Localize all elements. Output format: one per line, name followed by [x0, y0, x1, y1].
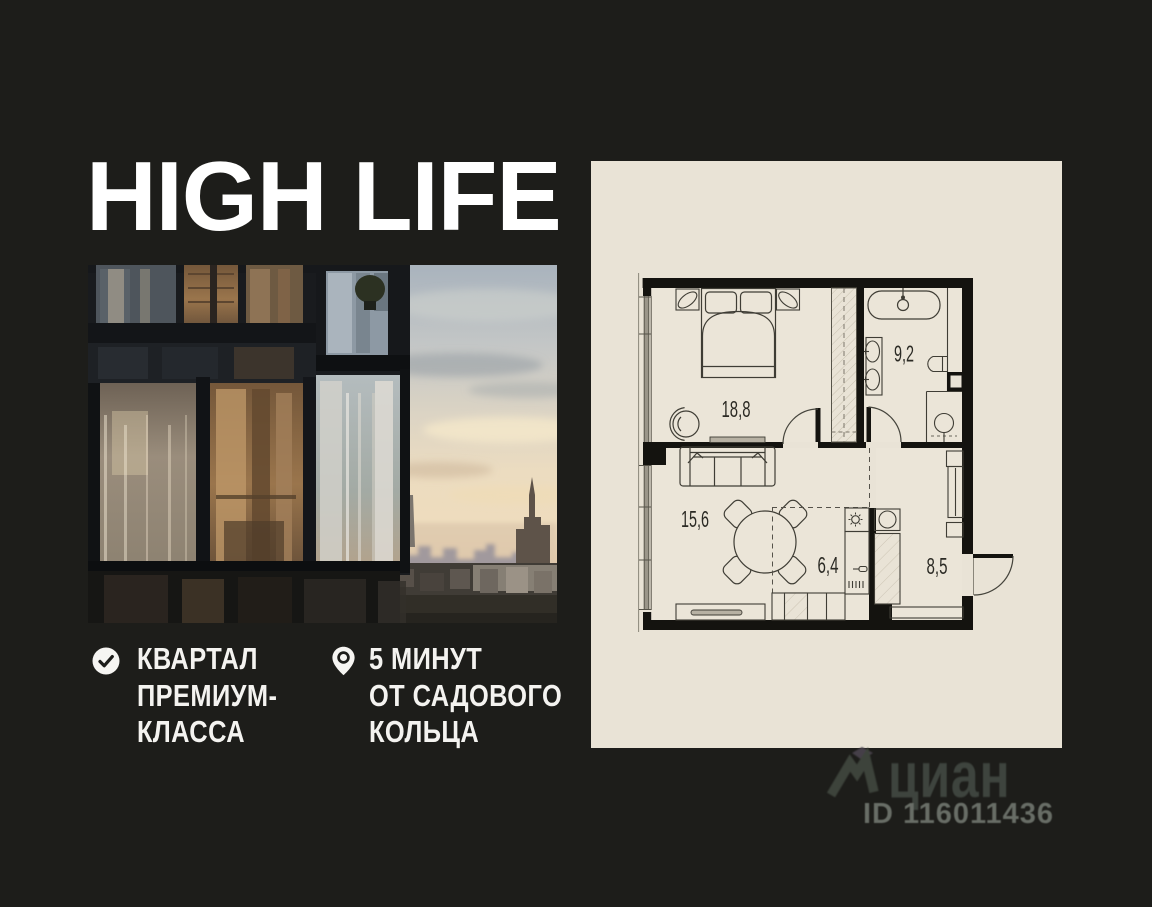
svg-text:6,4: 6,4	[818, 552, 839, 578]
svg-text:15,6: 15,6	[681, 506, 709, 532]
svg-text:18,8: 18,8	[722, 396, 751, 422]
svg-text:9,2: 9,2	[894, 341, 914, 367]
svg-text:8,5: 8,5	[927, 553, 948, 579]
